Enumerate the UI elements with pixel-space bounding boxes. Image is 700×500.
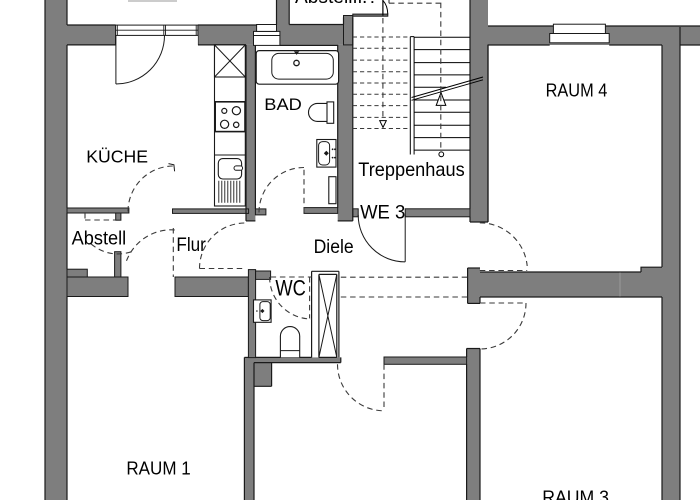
svg-text:Treppenhaus: Treppenhaus: [358, 159, 465, 181]
svg-text:WC: WC: [275, 276, 306, 301]
svg-text:KÜCHE: KÜCHE: [86, 146, 148, 166]
svg-text:BAD: BAD: [264, 95, 302, 114]
svg-text:Flur: Flur: [176, 234, 206, 256]
svg-text:Diele: Diele: [314, 236, 354, 258]
svg-text:Abstell: Abstell: [72, 227, 127, 249]
svg-text:Abstellfl.?: Abstellfl.?: [295, 0, 378, 8]
svg-text:RAUM 4: RAUM 4: [546, 80, 608, 101]
svg-text:RAUM 1: RAUM 1: [126, 457, 190, 478]
svg-text:WE 3: WE 3: [360, 202, 405, 224]
svg-text:RAUM 3: RAUM 3: [542, 486, 609, 500]
